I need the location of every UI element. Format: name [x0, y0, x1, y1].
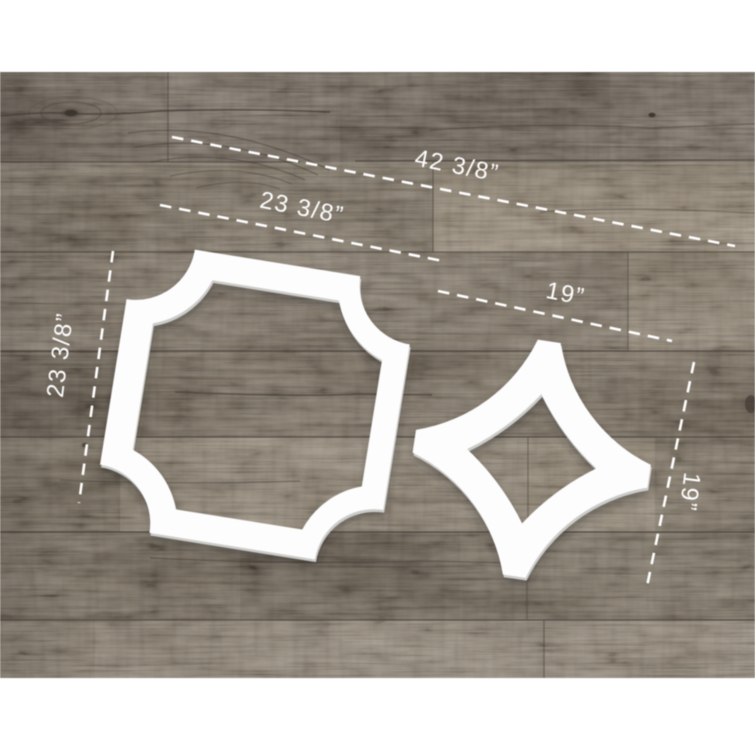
- svg-text:19”: 19”: [674, 471, 706, 513]
